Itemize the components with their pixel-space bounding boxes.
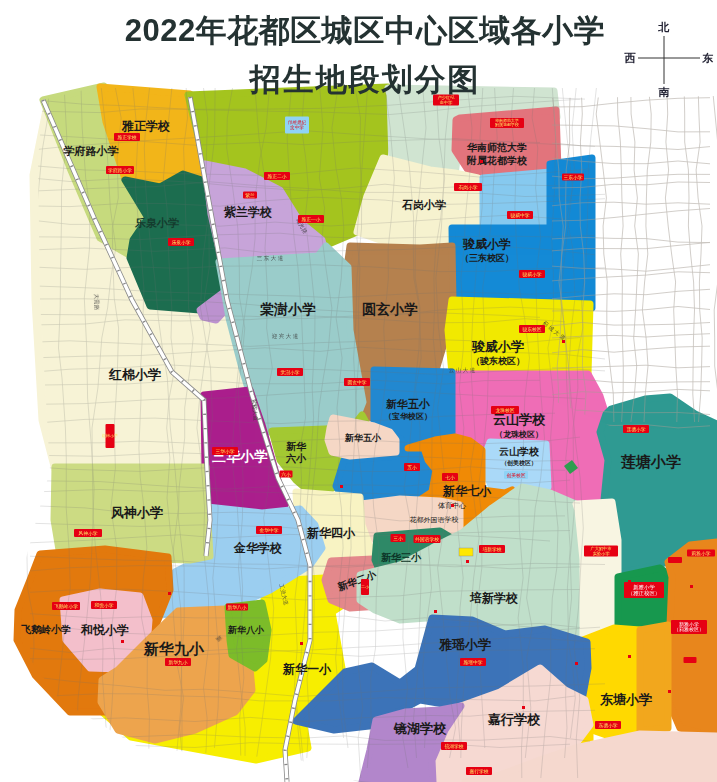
svg-text:培新学校: 培新学校 xyxy=(469,591,518,605)
svg-text:金华学校: 金华学校 xyxy=(233,541,282,555)
svg-text:三 东 大 道: 三 东 大 道 xyxy=(257,255,284,261)
svg-text:云 山 大 道: 云 山 大 道 xyxy=(449,367,476,373)
svg-text:新华八小: 新华八小 xyxy=(227,604,246,610)
svg-text:六小: 六小 xyxy=(281,471,291,477)
svg-text:新华三小: 新华三小 xyxy=(380,552,422,563)
svg-text:骏威小学: 骏威小学 xyxy=(462,237,511,251)
svg-text:三华小学: 三华小学 xyxy=(215,449,234,454)
svg-text:（三东校区）: （三东校区） xyxy=(460,253,514,263)
svg-text:西: 西 xyxy=(624,52,637,64)
svg-text:念中学: 念中学 xyxy=(440,100,453,105)
svg-text:红棉小学: 红棉小学 xyxy=(102,433,118,438)
svg-text:乐泉小学: 乐泉小学 xyxy=(134,217,179,229)
svg-text:圆玄中学: 圆玄中学 xyxy=(347,380,366,385)
svg-text:五小: 五小 xyxy=(407,465,417,470)
svg-text:2022年花都区城区中心区域各小学: 2022年花都区城区中心区域各小学 xyxy=(125,13,605,48)
svg-text:圆玄小学: 圆玄小学 xyxy=(362,301,418,317)
svg-text:龙珠校区: 龙珠校区 xyxy=(495,408,514,413)
svg-text:（雅正校区）: （雅正校区） xyxy=(628,590,660,597)
svg-text:骏威小学: 骏威小学 xyxy=(471,339,524,354)
svg-text:新华八小: 新华八小 xyxy=(227,625,265,635)
svg-text:（骏东校区）: （骏东校区） xyxy=(471,356,525,366)
svg-text:红棉小学: 红棉小学 xyxy=(108,367,161,382)
svg-text:新华九小: 新华九小 xyxy=(143,640,205,657)
svg-text:骏东校区: 骏东校区 xyxy=(522,326,541,333)
svg-text:培新学校: 培新学校 xyxy=(482,546,501,553)
svg-text:莲塘小学: 莲塘小学 xyxy=(620,453,681,470)
svg-text:棠澍小学: 棠澍小学 xyxy=(280,370,299,375)
svg-text:学府路小学: 学府路小学 xyxy=(63,145,119,157)
svg-text:创美校区: 创美校区 xyxy=(506,472,525,478)
svg-text:附属花都学校: 附属花都学校 xyxy=(467,155,528,166)
svg-text:紫兰: 紫兰 xyxy=(245,192,255,198)
svg-text:镜湖学校: 镜湖学校 xyxy=(393,721,447,736)
svg-text:（创美校区）: （创美校区） xyxy=(501,459,537,467)
svg-text:风神小学: 风神小学 xyxy=(110,505,163,520)
svg-text:紫兰学校: 紫兰学校 xyxy=(223,205,272,219)
svg-text:新华一小: 新华一小 xyxy=(282,662,332,676)
svg-text:二小: 二小 xyxy=(361,584,369,589)
svg-text:飞鹅岭小学: 飞鹅岭小学 xyxy=(21,624,71,635)
svg-text:云山学校: 云山学校 xyxy=(499,446,540,457)
svg-text:学府路小学: 学府路小学 xyxy=(108,167,132,174)
svg-text:飞鹅岭小学: 飞鹅岭小学 xyxy=(54,603,78,610)
svg-text:新华九小: 新华九小 xyxy=(168,659,187,665)
svg-text:（宝华校区）: （宝华校区） xyxy=(384,411,432,421)
svg-text:新华七小: 新华七小 xyxy=(442,484,492,498)
svg-text:（莉雅校区）: （莉雅校区） xyxy=(674,626,704,633)
svg-text:金华中学: 金华中学 xyxy=(259,528,278,533)
svg-text:和悦小学: 和悦小学 xyxy=(80,623,129,637)
svg-text:迎 宾 大 道: 迎 宾 大 道 xyxy=(272,333,299,339)
svg-text:华南师范大学: 华南师范大学 xyxy=(466,142,527,153)
svg-text:新华五小: 新华五小 xyxy=(385,398,431,410)
svg-text:六小: 六小 xyxy=(285,453,307,464)
svg-text:镜湖学校: 镜湖学校 xyxy=(444,743,463,750)
svg-text:棠澍小学: 棠澍小学 xyxy=(260,301,316,317)
svg-text:骏威小学: 骏威小学 xyxy=(522,271,541,278)
svg-text:东: 东 xyxy=(702,52,714,64)
svg-text:石岗小学: 石岗小学 xyxy=(458,184,477,190)
svg-text:南: 南 xyxy=(658,86,670,98)
svg-text:雅瑶小学: 雅瑶小学 xyxy=(438,637,491,652)
svg-text:花都外国语学校: 花都外国语学校 xyxy=(410,516,459,524)
svg-text:招生地段划分图: 招生地段划分图 xyxy=(249,62,481,97)
svg-text:东塘小学: 东塘小学 xyxy=(598,722,617,729)
svg-text:新华五小: 新华五小 xyxy=(344,433,382,443)
svg-text:外国语学校: 外国语学校 xyxy=(415,536,439,543)
svg-text:骏威中学: 骏威中学 xyxy=(510,212,529,219)
svg-text:三小: 三小 xyxy=(393,536,403,541)
svg-text:东塘小学: 东塘小学 xyxy=(599,692,652,707)
svg-text:（龙珠校区）: （龙珠校区） xyxy=(495,430,543,439)
svg-text:三东小学: 三东小学 xyxy=(563,174,582,180)
svg-text:念中学: 念中学 xyxy=(290,125,304,130)
svg-text:北: 北 xyxy=(658,21,670,33)
svg-text:乐泉小学: 乐泉小学 xyxy=(171,240,190,245)
svg-text:石岗小学: 石岗小学 xyxy=(401,199,446,211)
svg-text:七小: 七小 xyxy=(445,475,455,480)
svg-text:新华四小: 新华四小 xyxy=(306,526,356,540)
svg-text:新华: 新华 xyxy=(285,441,307,452)
svg-text:雅正学校: 雅正学校 xyxy=(121,119,170,133)
svg-text:天贵路: 天贵路 xyxy=(94,294,101,311)
svg-text:云山学校: 云山学校 xyxy=(493,412,546,427)
svg-text:和悦小学: 和悦小学 xyxy=(94,602,113,609)
svg-text:莲塘小学: 莲塘小学 xyxy=(626,426,645,433)
svg-text:嘉行学校: 嘉行学校 xyxy=(487,712,541,727)
svg-text:风神小学: 风神小学 xyxy=(78,531,97,536)
